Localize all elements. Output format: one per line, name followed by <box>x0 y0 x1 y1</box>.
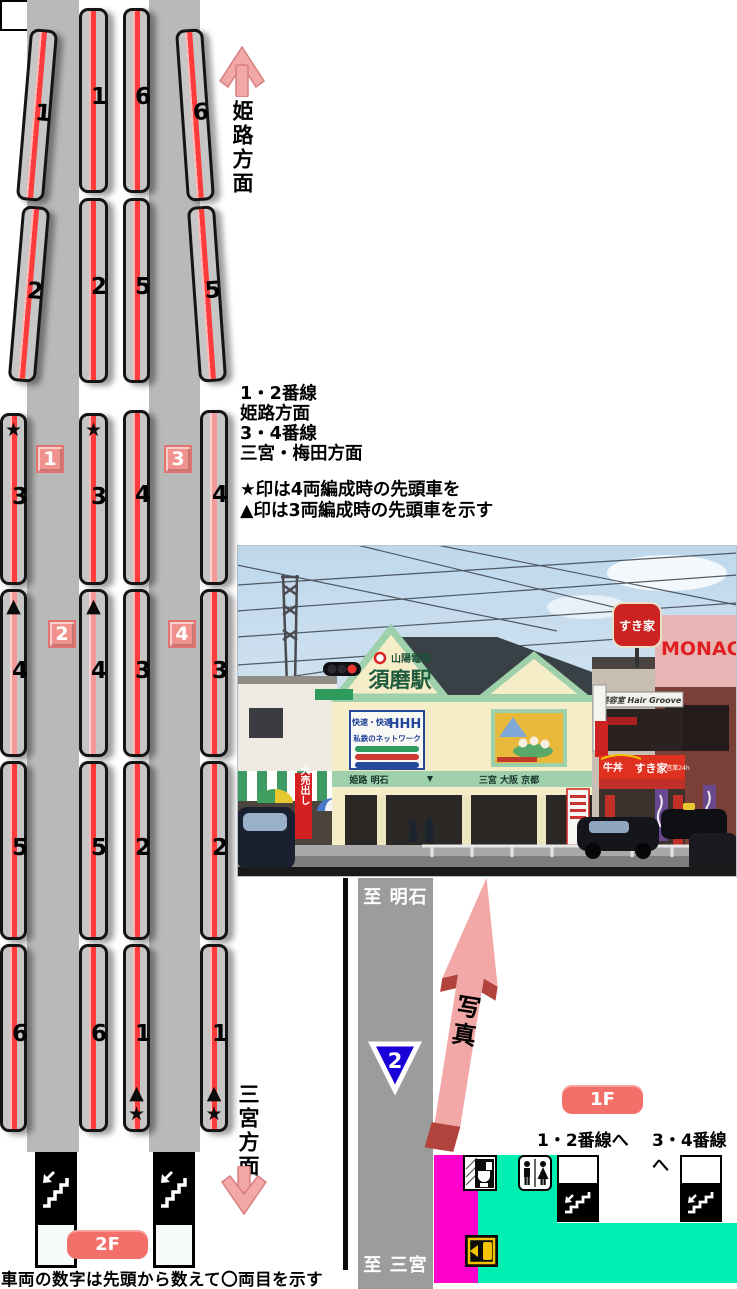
car-number: 1 <box>126 1023 147 1046</box>
sukiya-fascia-text: すき家 <box>635 761 669 775</box>
red-awning <box>599 779 685 789</box>
car-number: 4 <box>203 484 225 507</box>
car-number: 5 <box>195 280 219 304</box>
car-number: 3 <box>126 660 147 683</box>
train-car: 3 <box>123 589 150 757</box>
train-car: 2 <box>123 761 150 940</box>
car-number: 6 <box>183 101 207 125</box>
destination-right: 三宮 大阪 京都 <box>479 774 539 786</box>
legend-block: 1・2番線 姫路方面 3・4番線 三宮・梅田方面 <box>240 384 363 464</box>
car-number: 6 <box>82 1023 105 1046</box>
car-number: 4 <box>126 484 147 507</box>
to-platform-1-2-label: 1・2番線へ <box>537 1126 629 1151</box>
platform-badge-2: 2 <box>48 620 76 648</box>
yellow-billboard <box>493 711 565 765</box>
platform-badge-4: 4 <box>168 620 196 648</box>
legend-line: 姫路方面 <box>240 404 363 424</box>
train-car: ★3 <box>79 413 108 585</box>
train-car: ▲4 <box>79 589 108 757</box>
sannomiya-direction-label: 三宮方面 <box>237 1083 258 1179</box>
train-car: 6 <box>0 944 27 1132</box>
car-number: 5 <box>3 837 24 860</box>
monaco-sign: MONAC <box>661 638 737 660</box>
legend-line: 3・4番線 <box>240 424 363 444</box>
photo-arrow-label: 写真 <box>446 992 482 1052</box>
floor-badge-2f: 2F <box>67 1230 148 1259</box>
train-car: 3 <box>200 589 228 757</box>
restroom-icon <box>518 1155 552 1191</box>
car-number: 6 <box>126 86 147 109</box>
car-number: 1 <box>25 101 49 126</box>
route-number: 2 <box>388 1049 403 1073</box>
star-marker: ★ <box>82 421 105 440</box>
train-car: 5 <box>0 761 27 940</box>
car-number: 2 <box>203 837 225 860</box>
promo-logo: HHH <box>389 717 422 732</box>
train-car: ★3 <box>0 413 27 585</box>
star-note: ★印は4両編成時の先頭車を <box>240 480 493 501</box>
floor-badge-1f: 1F <box>562 1085 643 1114</box>
route-2-sign: 2 <box>366 1036 424 1096</box>
sannomiya-direction-arrow-icon <box>221 1166 267 1216</box>
train-car: 1 <box>79 8 108 193</box>
train-car: 2 <box>200 761 228 940</box>
train-car: 5 <box>123 198 150 383</box>
himeji-direction-arrow-icon <box>218 45 266 97</box>
promo-line2: 私鉄のネットワーク <box>352 733 421 743</box>
stairs-icon <box>559 1183 597 1220</box>
legend-line: 三宮・梅田方面 <box>240 444 363 464</box>
train-car: 6 <box>123 8 150 193</box>
toilet-icon <box>463 1155 497 1191</box>
triangle-marker: ▲ <box>3 597 24 616</box>
train-car: 1▲★ <box>200 944 228 1132</box>
stairs-to-platform-3-4 <box>680 1155 722 1222</box>
car-number: 2 <box>17 280 41 305</box>
train-car: 1▲★ <box>123 944 150 1132</box>
star-marker: ★ <box>126 1105 147 1124</box>
sale-banner: 大売出し <box>295 764 312 839</box>
star-marker: ★ <box>3 421 24 440</box>
car-number: 1 <box>203 1023 225 1046</box>
train-car: 5 <box>79 761 108 940</box>
car-number: 3 <box>203 660 225 683</box>
train-car: 2 <box>79 198 108 383</box>
train-car: 4 <box>200 410 228 585</box>
stairs-icon <box>153 1152 195 1222</box>
hair-salon-text: 美容室 Hair Groove <box>601 696 682 705</box>
destination-left: 姫路 明石 <box>349 774 388 786</box>
triangle-marker: ▲ <box>82 597 105 616</box>
platform-badge-3: 3 <box>164 445 192 473</box>
car-number: 5 <box>82 837 105 860</box>
stairs-to-platform-1-2 <box>557 1155 599 1222</box>
promo-panel: 快速・快適 HHH 私鉄のネットワーク <box>350 711 424 769</box>
open-24h-text: 営業24h <box>666 764 690 772</box>
stairs-landing <box>153 1222 195 1268</box>
car-number: 5 <box>126 276 147 299</box>
marker-notes: ★印は4両編成時の先頭車を ▲印は3両編成時の先頭車を示す <box>240 480 493 522</box>
car-number: 4 <box>3 660 24 683</box>
car-number: 2 <box>82 276 105 299</box>
road-label-sannomiya: 至 三宮 <box>358 1251 433 1277</box>
promo-line1: 快速・快適 <box>352 717 392 727</box>
map-boundary-line <box>343 878 348 1270</box>
car-number: 4 <box>82 660 105 683</box>
platform-badge-1: 1 <box>36 445 64 473</box>
ticket-gate-icon <box>465 1235 498 1267</box>
car-number: 2 <box>126 837 147 860</box>
star-marker: ★ <box>203 1105 225 1124</box>
triangle-marker: ▲ <box>126 1084 147 1103</box>
bottom-caption: 車両の数字は先頭から数えて〇両目を示す <box>1 1266 323 1289</box>
station-photo: 大売出し 山陽電車 須磨駅 快速・快適 HHH 私鉄のネットワーク <box>237 545 737 877</box>
himeji-direction-label: 姫路方面 <box>231 100 252 196</box>
triangle-note: ▲印は3両編成時の先頭車を示す <box>240 501 493 522</box>
concourse-area-lower <box>478 1223 737 1283</box>
train-car: ▲4 <box>0 589 27 757</box>
stairs-icon <box>682 1183 720 1220</box>
triangle-marker: ▲ <box>203 1084 225 1103</box>
train-car: 4 <box>123 410 150 585</box>
station-guide-page: 1 2 ★3 ▲4 5 6 1 2 ★3 ▲4 5 6 6 5 4 3 2 1▲… <box>0 0 737 1289</box>
operator-sign: 山陽電車 <box>391 652 431 665</box>
station-name-sign: 須磨駅 <box>369 668 433 692</box>
car-number: 3 <box>3 486 24 509</box>
train-car: 6 <box>79 944 108 1132</box>
sale-banner-text: 大売出し <box>298 764 310 806</box>
sukiya-rooftop-text: すき家 <box>619 618 656 633</box>
photo-direction-arrow: 写真 <box>420 874 520 1164</box>
railway-logo <box>375 653 385 663</box>
stairs-icon <box>35 1152 77 1222</box>
car-number: 3 <box>82 486 105 509</box>
small-green-sign <box>315 689 353 700</box>
car-number: 6 <box>3 1023 24 1046</box>
beef-bowl-text: 牛丼 <box>603 761 623 774</box>
red-vertical-sign <box>595 721 608 757</box>
car-number: 1 <box>82 86 105 109</box>
legend-line: 1・2番線 <box>240 384 363 404</box>
stairs-platform-3-4 <box>153 1152 195 1268</box>
